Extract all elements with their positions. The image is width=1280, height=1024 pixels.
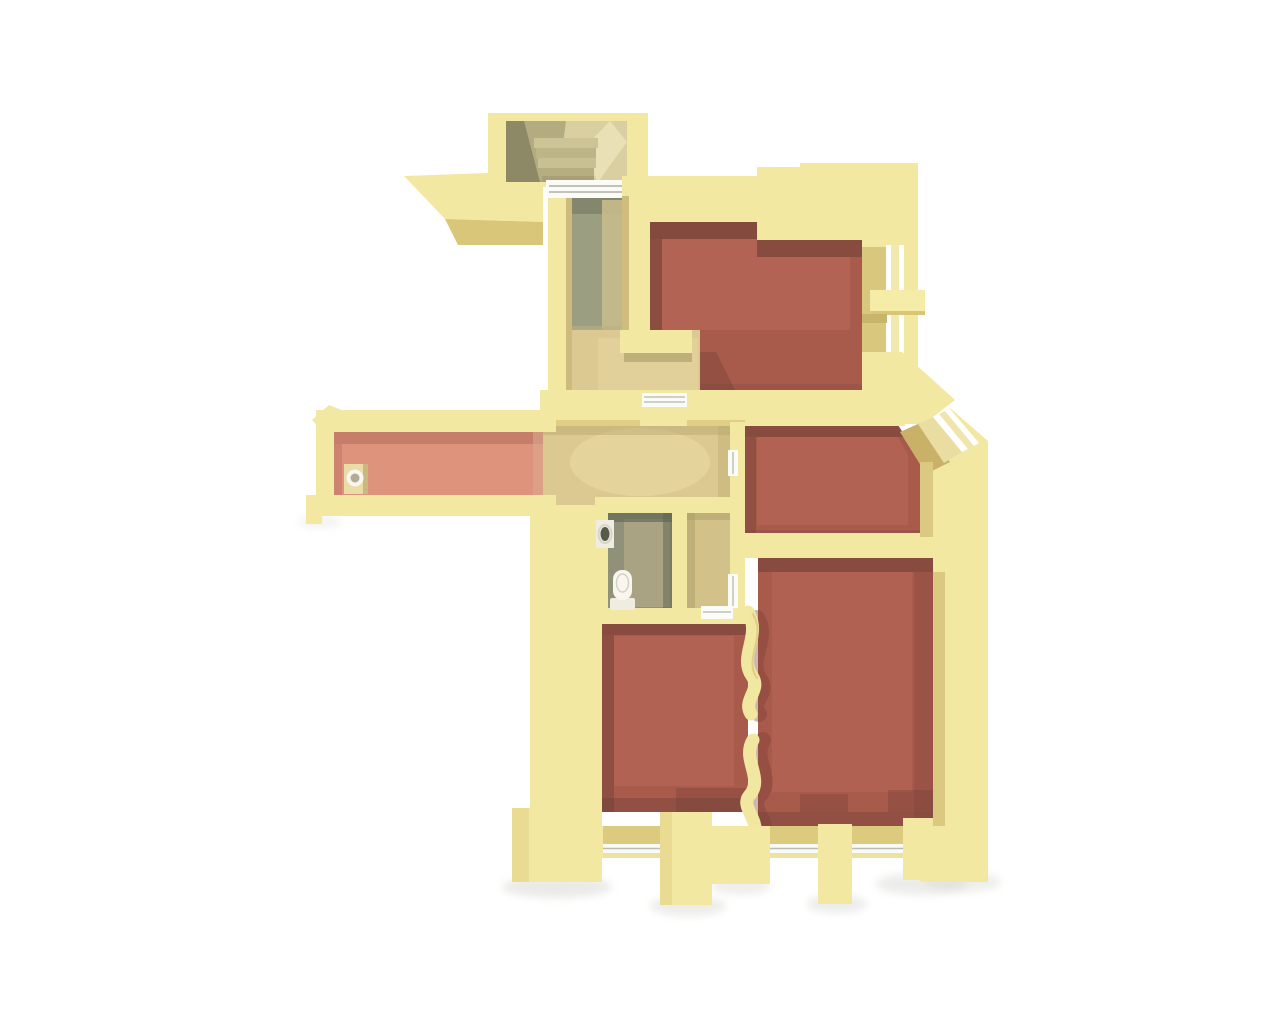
floor-middle-right-sheen: [757, 437, 908, 525]
floor-middle-right-wshadow: [745, 437, 756, 537]
floor-bottom-left-sshadow-jog: [676, 788, 748, 812]
wall-bath-north: [595, 497, 745, 513]
floor-entry-tan-strip: [602, 200, 622, 338]
floor-bottom-right-eshade: [914, 572, 933, 828]
wall-pier-right-1: [818, 824, 852, 904]
floor-bottom-right-sjog1: [800, 794, 848, 812]
wavy-wall-upper: [747, 612, 754, 714]
floor-nook-w-ao: [687, 512, 695, 618]
window-bottom-recess-3: [852, 826, 905, 845]
wall-mid-face-west: [545, 420, 640, 426]
wall-right-inner-face-mid: [920, 462, 933, 537]
wall-balcony-pier-shadow: [862, 314, 887, 323]
wall-balcony-pier: [870, 290, 925, 314]
threshold-entry-hall: [642, 393, 687, 407]
window-bottom-2-sill: [768, 853, 820, 858]
floor-wing-nshadow: [332, 432, 543, 444]
wall-right-inner-face-low: [933, 572, 945, 826]
wall-band-segment: [710, 826, 770, 884]
wall-stub: [620, 330, 692, 353]
floor-bathroom-n-ao: [608, 513, 672, 522]
wall-stub-face: [624, 353, 692, 362]
wall-southwest-block: [530, 505, 602, 832]
floor-plan-render: [0, 0, 1280, 1024]
stair-step-1: [534, 138, 598, 148]
threshold-stairwell-entry: [546, 180, 627, 198]
wall-bath-mid: [672, 513, 687, 624]
window-bottom-recess-2: [768, 826, 820, 845]
floor-wing-east-blend: [533, 432, 543, 497]
wall-wing-south: [306, 495, 556, 516]
floor-bottom-left-sheen: [614, 636, 734, 786]
wall-wing-sw-step: [306, 503, 322, 524]
window-topright-upper-gap: [891, 245, 899, 292]
screenshot-root: [0, 0, 1280, 1024]
window-topright-lower-gap: [891, 313, 899, 357]
floor-top-right-nshadow2: [757, 240, 863, 257]
wall-wing-slab-face: [445, 219, 543, 245]
floor-top-right-nshadow1: [650, 222, 757, 239]
wall-entry-west-face: [566, 196, 572, 422]
floor-middle-right-nshadow: [745, 425, 906, 437]
stair-step-2: [536, 148, 596, 158]
floor-plan-layers: [298, 113, 1001, 916]
wall-wing-west: [316, 410, 334, 508]
floor-bathroom-e-ao: [663, 513, 672, 612]
window-topright-lower-b: [899, 313, 904, 357]
window-bottom-1-sill: [603, 853, 662, 858]
window-bottom-recess-1: [603, 826, 662, 845]
stair-step-3: [538, 158, 596, 168]
wavy-wall-lower: [747, 740, 755, 832]
corridor-drain-box-shade: [363, 464, 368, 494]
floor-bottom-right-nshadow: [758, 558, 933, 572]
wall-corner-block: [920, 826, 988, 882]
floor-central-hall-n-ao: [543, 425, 730, 435]
bath-sink-hole: [601, 527, 610, 541]
floor-nook-n-ao: [687, 512, 730, 520]
wall-wing-north: [318, 410, 556, 432]
floor-top-right-wshadow: [650, 239, 662, 330]
floor-central-hall-light: [570, 428, 710, 496]
wall-pier-center-face: [660, 812, 672, 905]
floor-bottom-right-sheen: [772, 572, 912, 792]
corridor-drain-hole: [351, 474, 360, 483]
wall-mid-band-2: [745, 533, 933, 558]
window-bottom-3-sill: [852, 853, 905, 858]
floor-bottom-right-sjog2: [888, 790, 933, 812]
window-topright-upper-b: [899, 245, 904, 292]
window-topright-upper-a: [886, 245, 891, 292]
wall-entry-east-face: [622, 196, 629, 334]
wall-pier-left-face: [512, 808, 529, 882]
floor-bottom-left-wshadow: [602, 635, 614, 812]
wall-top-band-3: [800, 163, 918, 240]
